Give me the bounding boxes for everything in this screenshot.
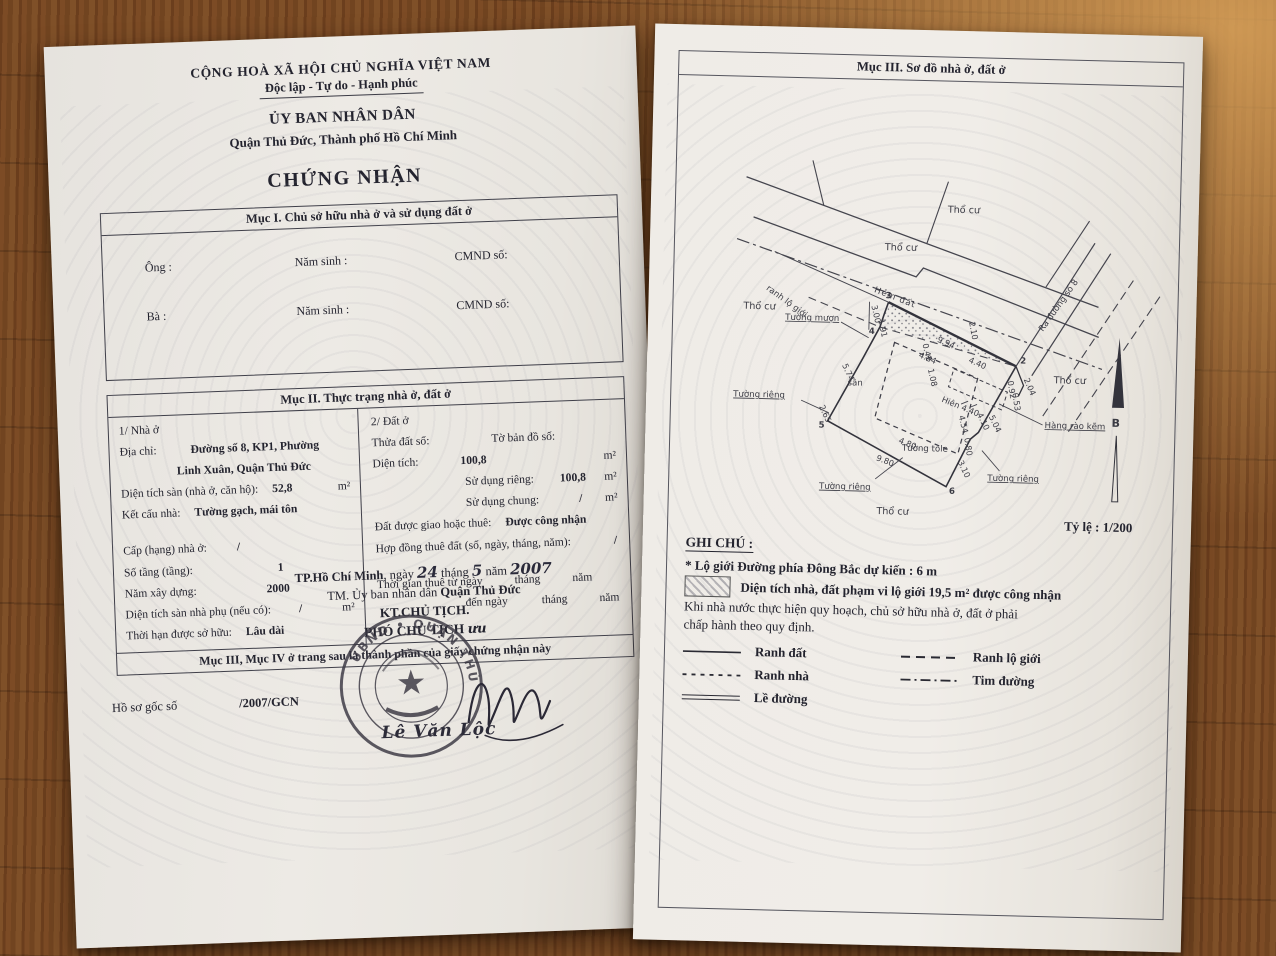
legend-line-dashdot: [900, 677, 958, 681]
north-arrow-icon: [1112, 338, 1126, 408]
notes-title: GHI CHÚ :: [685, 534, 753, 553]
handwritten-day: 24: [417, 563, 439, 582]
docket-value: /2007/GCN: [239, 694, 299, 711]
birth-year-label: Năm sinh :: [294, 249, 454, 270]
dim-label: 9.80: [875, 453, 896, 469]
handwritten-signature: [452, 640, 586, 770]
legend-ranh-nha: Ranh nhà: [682, 665, 900, 686]
legend-tim-duong: Tim đường: [900, 671, 1154, 693]
stamp-star-icon: ★: [395, 663, 427, 704]
owner-row-mr: Ông : Năm sinh : CMND số:: [103, 243, 619, 277]
legend-ranh-dat: Ranh đất: [683, 642, 901, 663]
legend-line-dotted: [682, 672, 740, 676]
dim-label: 1.08: [926, 367, 940, 387]
corridor-hatch-swatch: [684, 575, 730, 597]
dim-label: 3.10: [956, 459, 973, 480]
leader: [841, 322, 869, 338]
legend-line-double: [682, 694, 740, 700]
legend-le-duong: Lề đường: [682, 688, 900, 709]
legend-line-dashed: [901, 654, 959, 658]
private-wall-label: Tường riêng: [732, 388, 785, 400]
section-3-box: Mục III. Sơ đồ nhà ở, đất ở: [658, 50, 1185, 920]
north-arrow-tail: [1112, 436, 1120, 502]
zone-label: Thổ cư: [947, 203, 981, 217]
scale-label: Tỷ lệ : 1/200: [1064, 519, 1133, 536]
private-wall-label: Tường riêng: [818, 481, 871, 493]
place: TP.Hồ Chí Minh: [294, 568, 383, 585]
legend-ranh-lo-gioi: Ranh lộ giới: [901, 648, 1155, 670]
national-header: CỘNG HOÀ XÃ HỘI CHỦ NGHĨA VIỆT NAM Độc l…: [44, 25, 641, 201]
cadastral-diagram: Thổ cư Thổ cư Thổ cư Thổ cư Thổ cư Hẻm đ…: [668, 75, 1183, 544]
right-page: Mục III. Sơ đồ nhà ở, đất ở: [633, 23, 1203, 952]
dim-label: 5.74: [840, 362, 857, 383]
section-1-table: Mục I. Chủ sở hữu nhà ở và sử dụng đất ở…: [100, 194, 624, 381]
map-sheet-label: Tờ bản đồ số:: [491, 426, 556, 449]
handwritten-year: 2007: [510, 559, 552, 579]
birth-year-label: Năm sinh :: [296, 298, 456, 319]
photo-of-document-on-wood-table: CỘNG HOÀ XÃ HỘI CHỦ NGHĨA VIỆT NAM Độc l…: [0, 0, 1276, 956]
wire-fence-label: Hàng rào kẽm: [1044, 421, 1105, 432]
legend: Ranh đất Ranh lộ giới Ranh nhà Tim đường: [682, 642, 1155, 716]
corner-number: 6: [949, 487, 955, 497]
section-1-body: Ông : Năm sinh : CMND số: Bà : Năm sinh …: [102, 217, 623, 380]
certificate-title: CHỨNG NHẬN: [48, 156, 640, 201]
north-label: B: [1111, 417, 1120, 430]
leader: [981, 451, 999, 471]
corner-number: 3: [886, 291, 892, 301]
zone-label: Thổ cư: [1053, 373, 1087, 387]
id-number-label: CMND số:: [456, 293, 606, 313]
legend-line-solid: [683, 649, 741, 653]
corner-number: 5: [818, 421, 824, 431]
zone-label: Thổ cư: [875, 504, 909, 518]
dim-label: 0.80: [962, 437, 975, 457]
left-page: CỘNG HOÀ XÃ HỘI CHỦ NGHĨA VIỆT NAM Độc l…: [44, 25, 669, 948]
neighbor-tick: [812, 160, 825, 205]
neighbor-tick: [927, 181, 949, 243]
borrowed-wall-label: Tường mượn: [784, 312, 839, 324]
private-wall-label: Tường riêng: [986, 473, 1039, 485]
corner-number: 2: [1020, 356, 1026, 366]
dim-label: 2.04: [1022, 376, 1038, 397]
owner-row-mrs: Bà : Năm sinh : CMND số:: [104, 292, 620, 326]
address-label: Địa chỉ:: [119, 440, 157, 462]
handwritten-month: 5: [472, 561, 483, 579]
dim-label: 4.54: [957, 414, 971, 434]
mr-label: Ông :: [145, 255, 295, 275]
dim-label: 2.10: [967, 321, 980, 341]
to-street-label: Ra đường số 8: [1036, 277, 1081, 334]
docket-number-line: Hồ sơ gốc số /2007/GCN: [112, 694, 299, 716]
corner-number: 4: [869, 327, 875, 337]
boundary-extension: [774, 251, 890, 302]
neighbor-tick: [1046, 220, 1090, 288]
docket-label: Hồ sơ gốc số: [112, 699, 178, 716]
zone-label: Thổ cư: [742, 299, 776, 313]
notes-section: GHI CHÚ : * Lộ giới Đường phía Đông Bắc …: [664, 532, 1172, 716]
mrs-label: Bà :: [146, 304, 296, 324]
id-number-label: CMND số:: [454, 244, 604, 264]
dim-label: 0.53: [1010, 392, 1023, 412]
zone-label: Thổ cư: [884, 240, 918, 254]
road-north-line: [744, 177, 1102, 308]
